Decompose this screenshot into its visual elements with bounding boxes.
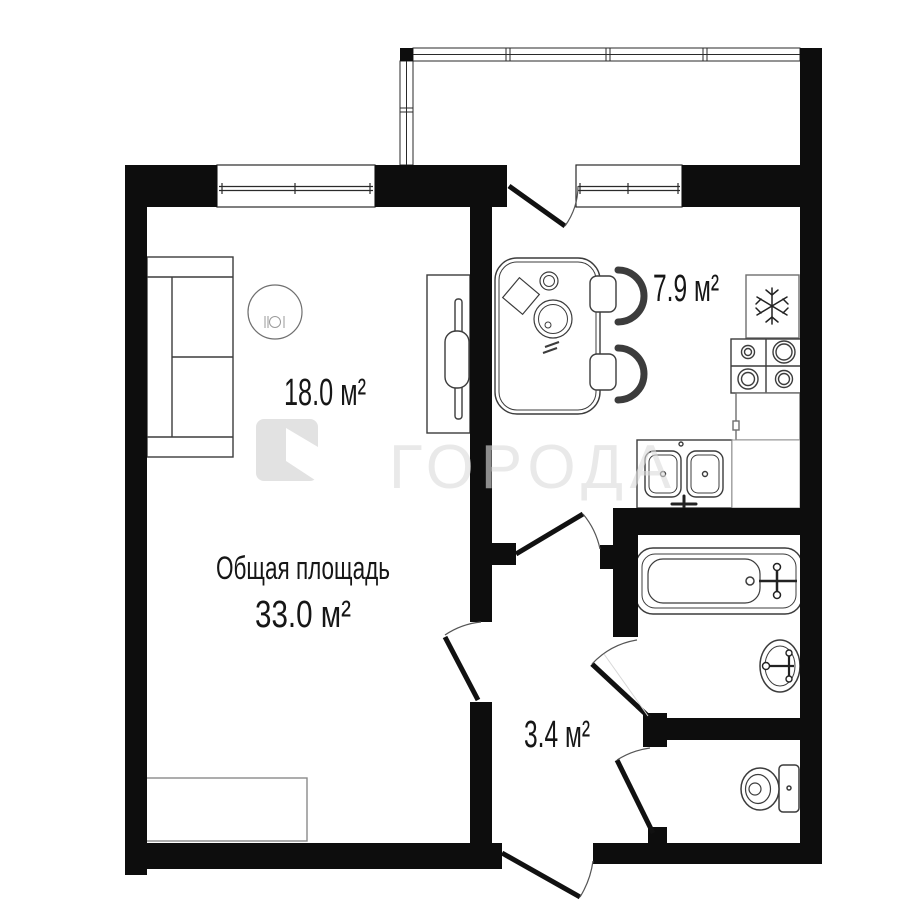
watermark-text: ГОРОДА [389, 433, 672, 502]
tv-stand [427, 275, 470, 433]
hallway-area-label: 3.4 м² [524, 714, 590, 756]
living-room-door [445, 622, 481, 700]
toilet [741, 765, 799, 812]
fridge [746, 275, 799, 338]
bathtub [636, 548, 802, 614]
goroda-logo-icon [256, 419, 318, 482]
wall-bathroom-left [613, 534, 638, 637]
bathroom-fixtures [636, 548, 802, 692]
wall-bottom-living [125, 843, 502, 869]
wall-left [125, 165, 147, 875]
sofa [147, 257, 233, 457]
living-room-area-label: 18.0 м² [284, 372, 366, 414]
wall-bottom-right [593, 843, 822, 864]
total-area-value: 33.0 м² [255, 594, 351, 636]
balcony [400, 48, 800, 165]
living-room-window [217, 165, 375, 207]
toilet-fixtures [741, 765, 799, 812]
stove [731, 339, 801, 393]
kitchen-area-label: 7.9 м² [653, 268, 719, 310]
toilet-door [617, 748, 653, 833]
kitchen-door [516, 514, 600, 554]
dining-table [495, 258, 600, 414]
wall-middle-upper [470, 198, 492, 622]
entrance-door [502, 853, 593, 897]
kitchen-window [576, 165, 682, 207]
kitchen-counter [732, 440, 800, 508]
round-table [248, 285, 302, 339]
floor-plan: ГОРОДА 18.0 м² 7.9 м² 3.4 м² Общая площа… [0, 0, 911, 911]
sideboard [146, 778, 307, 841]
balcony-door [509, 186, 578, 226]
wash-basin [760, 640, 800, 692]
wall-balcony-corner [400, 48, 413, 61]
wall-top-kitchen-right [682, 165, 802, 207]
wall-middle-lower [470, 702, 492, 843]
wall-kitchen-bottom [613, 508, 822, 535]
wall-right [800, 48, 822, 864]
wall-bathroom-toilet-divider [655, 718, 802, 740]
drain [746, 577, 754, 585]
living-room-furniture [146, 257, 470, 841]
kitchen-cabinet [733, 393, 800, 440]
total-area-caption: Общая площадь [216, 550, 390, 586]
bathroom-door [592, 640, 650, 718]
wall-stub-hall [492, 543, 516, 565]
